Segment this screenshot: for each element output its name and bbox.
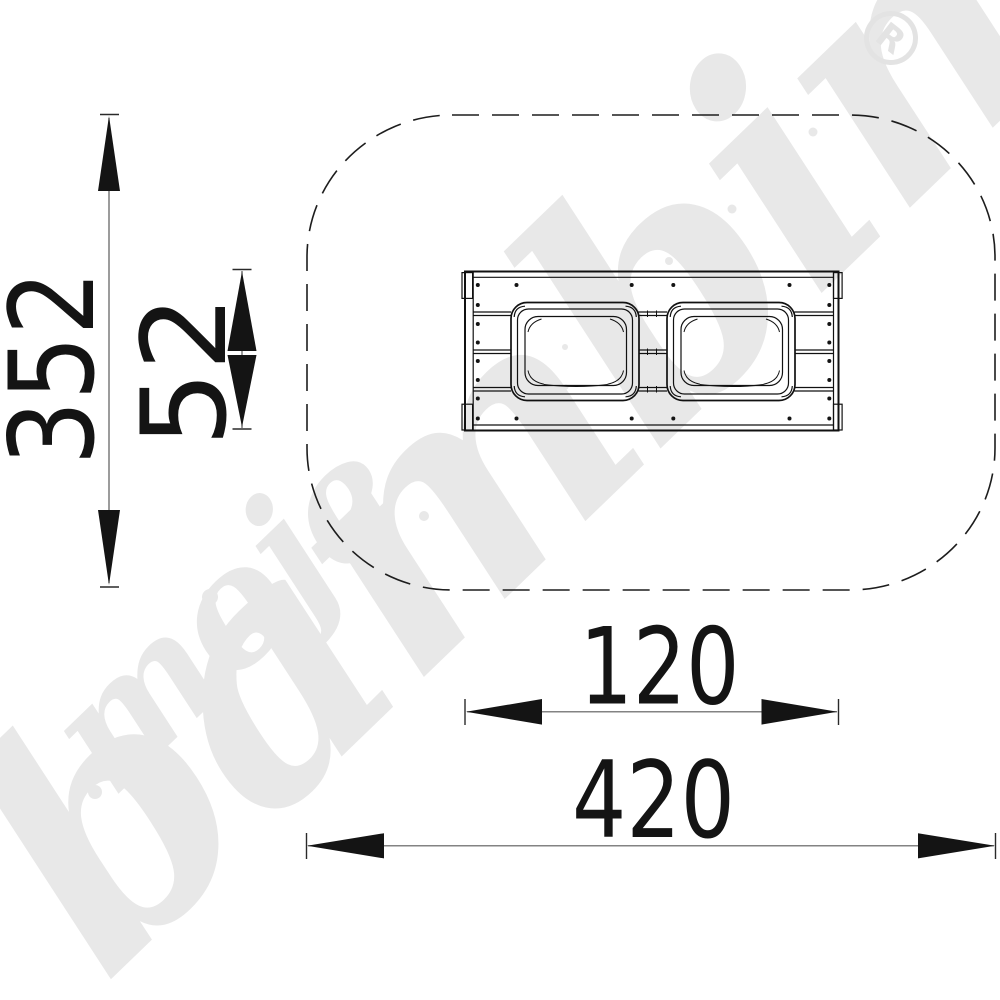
screw-dot (827, 341, 831, 345)
dimension-52: 52 (116, 270, 257, 448)
screw-dot (476, 378, 480, 382)
screw-dot (630, 417, 634, 421)
dimension-352: 352 (0, 115, 121, 588)
watermark-dot (709, 241, 718, 250)
screw-dot (476, 397, 480, 401)
screw-dot (827, 283, 831, 287)
watermark-dot (562, 344, 568, 350)
screw-dot (476, 303, 480, 307)
watermark-layer: bambino moje R (0, 0, 1000, 1000)
screw-dot (827, 397, 831, 401)
screw-dot (515, 283, 519, 287)
watermark-dot (764, 178, 773, 187)
watermark-word-bambino: bambino (0, 0, 1000, 1000)
dimension-352-value: 352 (0, 271, 121, 466)
screw-dot (476, 283, 480, 287)
screw-dot (476, 359, 480, 363)
screw-dot (788, 417, 792, 421)
screw-dot (476, 417, 480, 421)
watermark-dot (833, 75, 842, 84)
arrow-right-icon (918, 833, 995, 858)
arrow-right-icon (762, 699, 838, 725)
screw-dot (827, 378, 831, 382)
watermark-dot (728, 205, 737, 214)
dimension-120-value: 120 (580, 606, 740, 729)
screw-dot (671, 283, 675, 287)
watermark-dot (202, 589, 218, 605)
watermark-dot (88, 785, 102, 799)
watermark-dot (381, 557, 394, 570)
technical-drawing-canvas: bambino moje R (0, 0, 1000, 1000)
watermark-dot (809, 128, 818, 137)
screw-dot (827, 359, 831, 363)
watermark-dot (419, 511, 429, 521)
screw-dot (476, 341, 480, 345)
screw-dot (476, 322, 480, 326)
screw-dot (630, 283, 634, 287)
screw-dot (788, 283, 792, 287)
screw-dot (827, 303, 831, 307)
dimension-52-value: 52 (116, 295, 253, 447)
screw-dot (827, 417, 831, 421)
arrow-up-icon (98, 116, 120, 191)
screw-dot (515, 417, 519, 421)
screw-dot (827, 322, 831, 326)
watermark-dot (423, 460, 433, 470)
watermark-dot (665, 257, 673, 265)
technical-drawing-page: bambino moje R (0, 0, 1000, 1000)
dimension-420-value: 420 (572, 739, 735, 862)
watermark-dot (792, 176, 800, 184)
screw-dot (671, 417, 675, 421)
